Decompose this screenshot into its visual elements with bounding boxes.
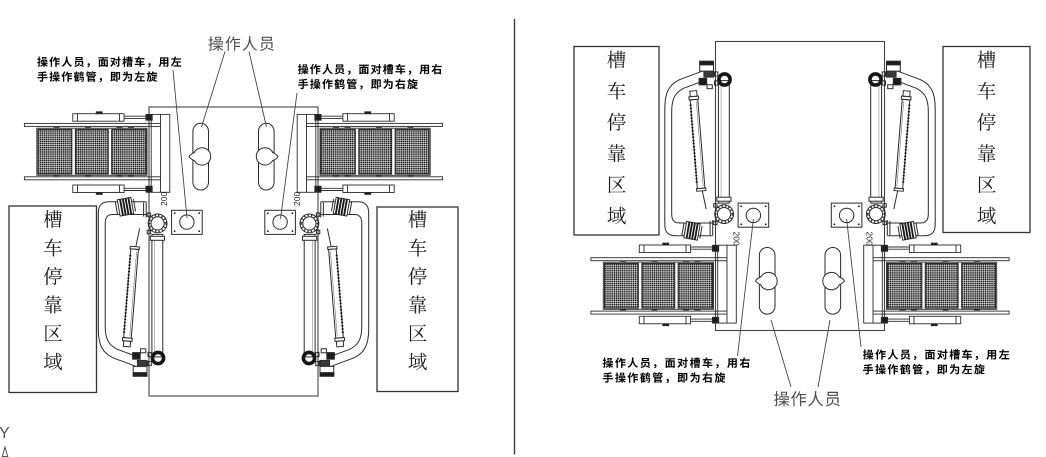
svg-text:Y: Y <box>0 425 10 442</box>
